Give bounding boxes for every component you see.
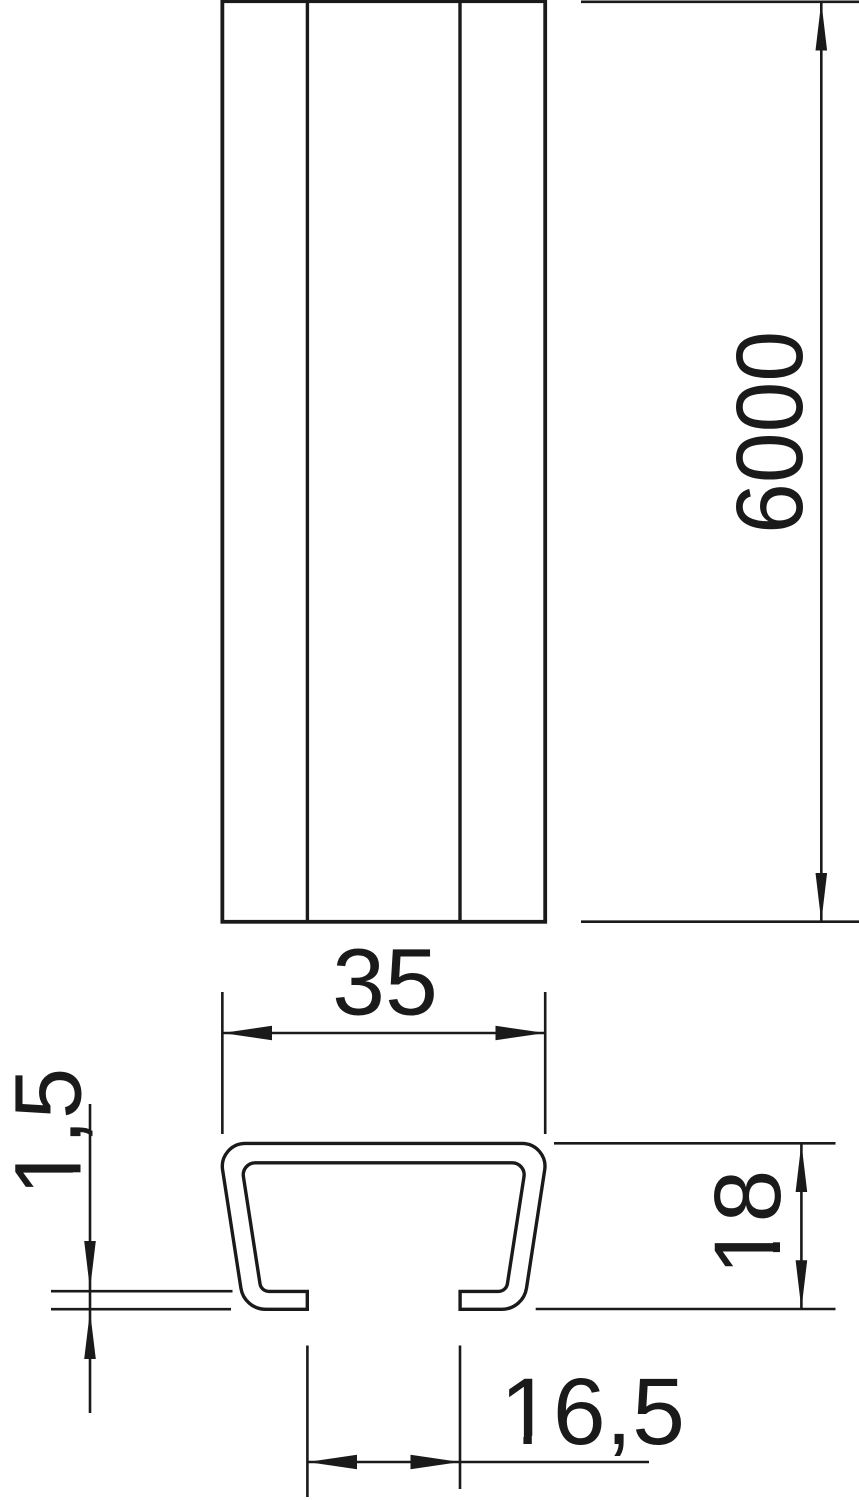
svg-text:35: 35 <box>332 930 438 1036</box>
svg-text:6000: 6000 <box>717 331 823 534</box>
svg-text:1,5: 1,5 <box>0 1068 102 1196</box>
svg-text:18: 18 <box>695 1170 801 1276</box>
svg-text:16,5: 16,5 <box>500 1359 685 1465</box>
